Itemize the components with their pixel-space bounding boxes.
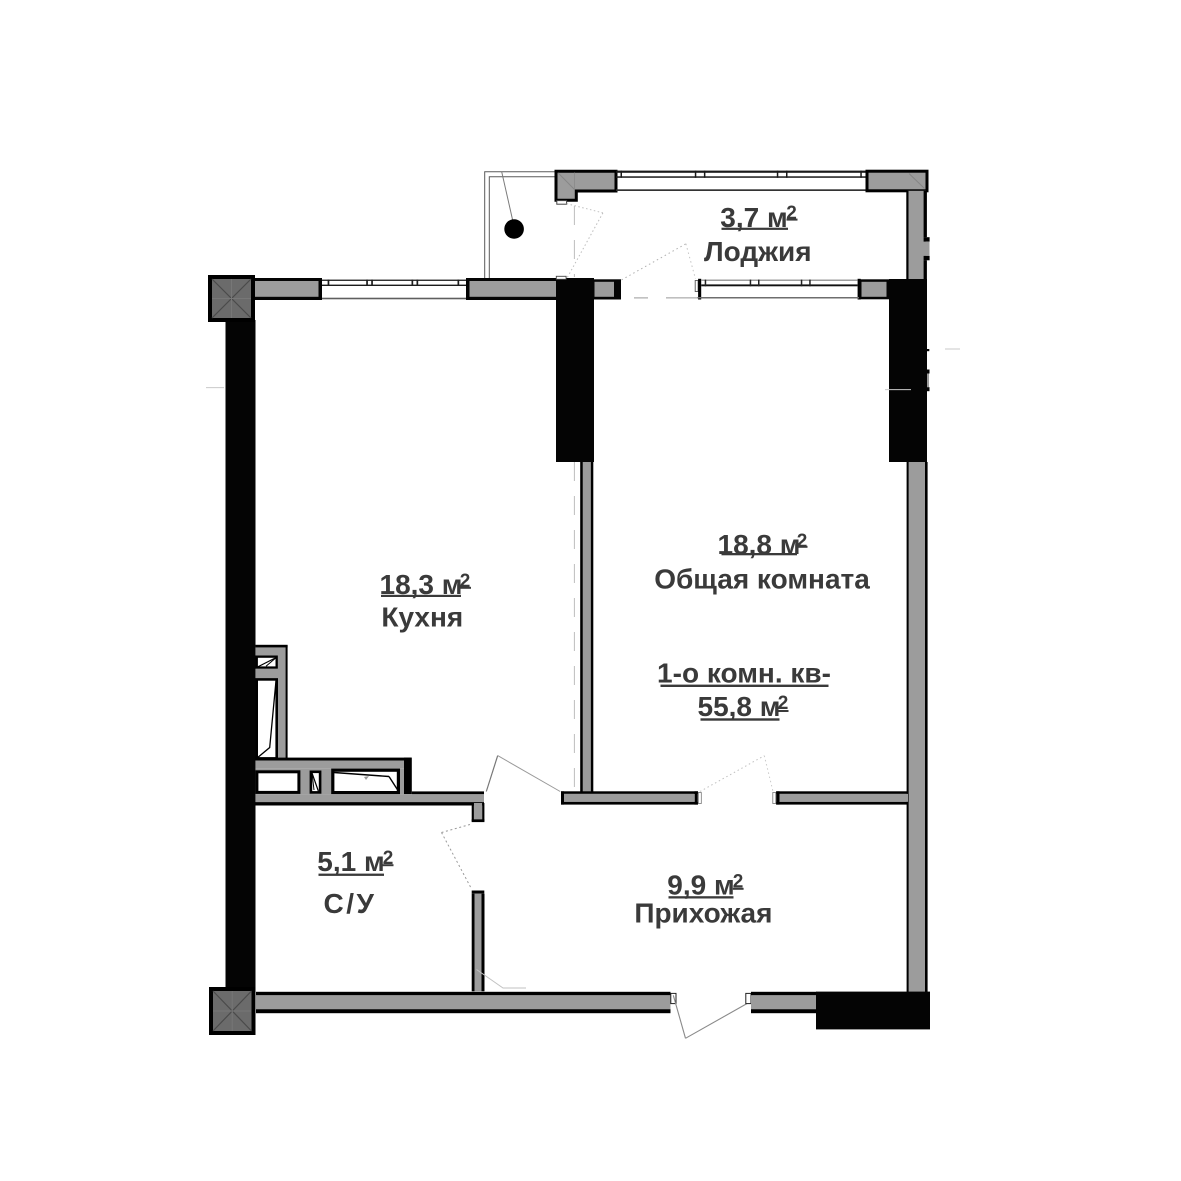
svg-text:2: 2 <box>797 531 808 552</box>
svg-text:55,8 м: 55,8 м <box>698 691 781 722</box>
svg-text:18,8 м: 18,8 м <box>718 529 801 560</box>
svg-text:2: 2 <box>460 571 471 592</box>
svg-text:1-о комн. кв-: 1-о комн. кв- <box>657 658 831 689</box>
svg-text:Кухня: Кухня <box>381 601 463 632</box>
svg-text:Общая комната: Общая комната <box>654 564 870 595</box>
svg-text:5,1 м: 5,1 м <box>317 846 384 877</box>
svg-text:Лоджия: Лоджия <box>704 236 812 267</box>
svg-text:Прихожая: Прихожая <box>634 898 772 929</box>
svg-text:С/У: С/У <box>324 888 377 919</box>
svg-text:2: 2 <box>786 203 797 224</box>
svg-text:9,9 м: 9,9 м <box>667 870 734 901</box>
